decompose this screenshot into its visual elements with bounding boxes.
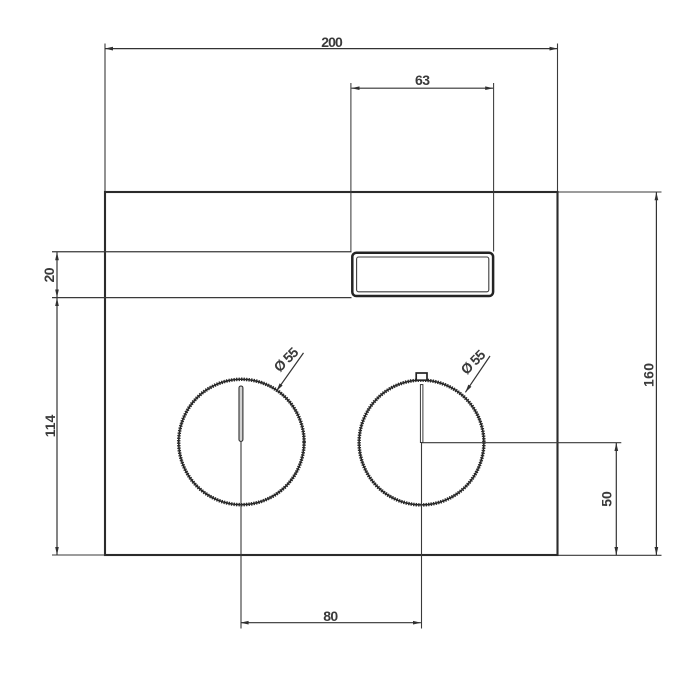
svg-text:50: 50 <box>599 491 615 507</box>
svg-text:160: 160 <box>641 363 657 387</box>
svg-text:20: 20 <box>41 267 57 282</box>
svg-text:200: 200 <box>321 34 343 50</box>
svg-text:114: 114 <box>42 415 58 438</box>
svg-text:63: 63 <box>415 72 430 88</box>
svg-text:80: 80 <box>323 608 338 624</box>
